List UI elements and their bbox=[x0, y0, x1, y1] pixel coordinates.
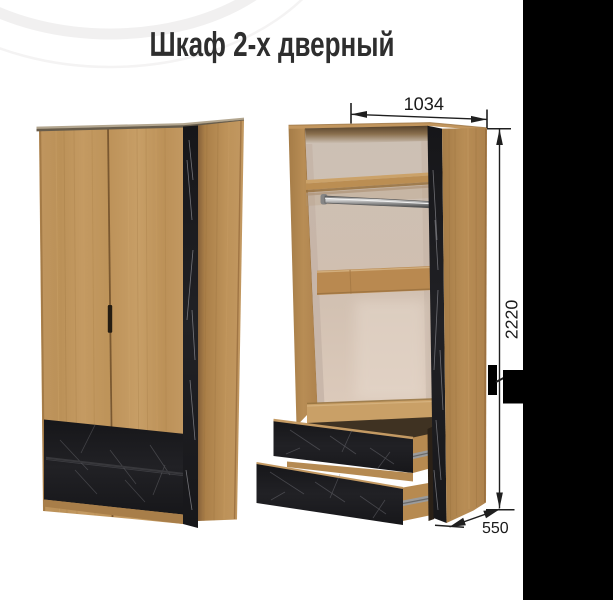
svg-text:2220: 2220 bbox=[502, 300, 522, 340]
svg-text:550: 550 bbox=[482, 520, 509, 537]
svg-text:Шкаф 2-х дверный: Шкаф 2-х дверный bbox=[149, 26, 394, 64]
svg-text:1034: 1034 bbox=[404, 94, 444, 114]
